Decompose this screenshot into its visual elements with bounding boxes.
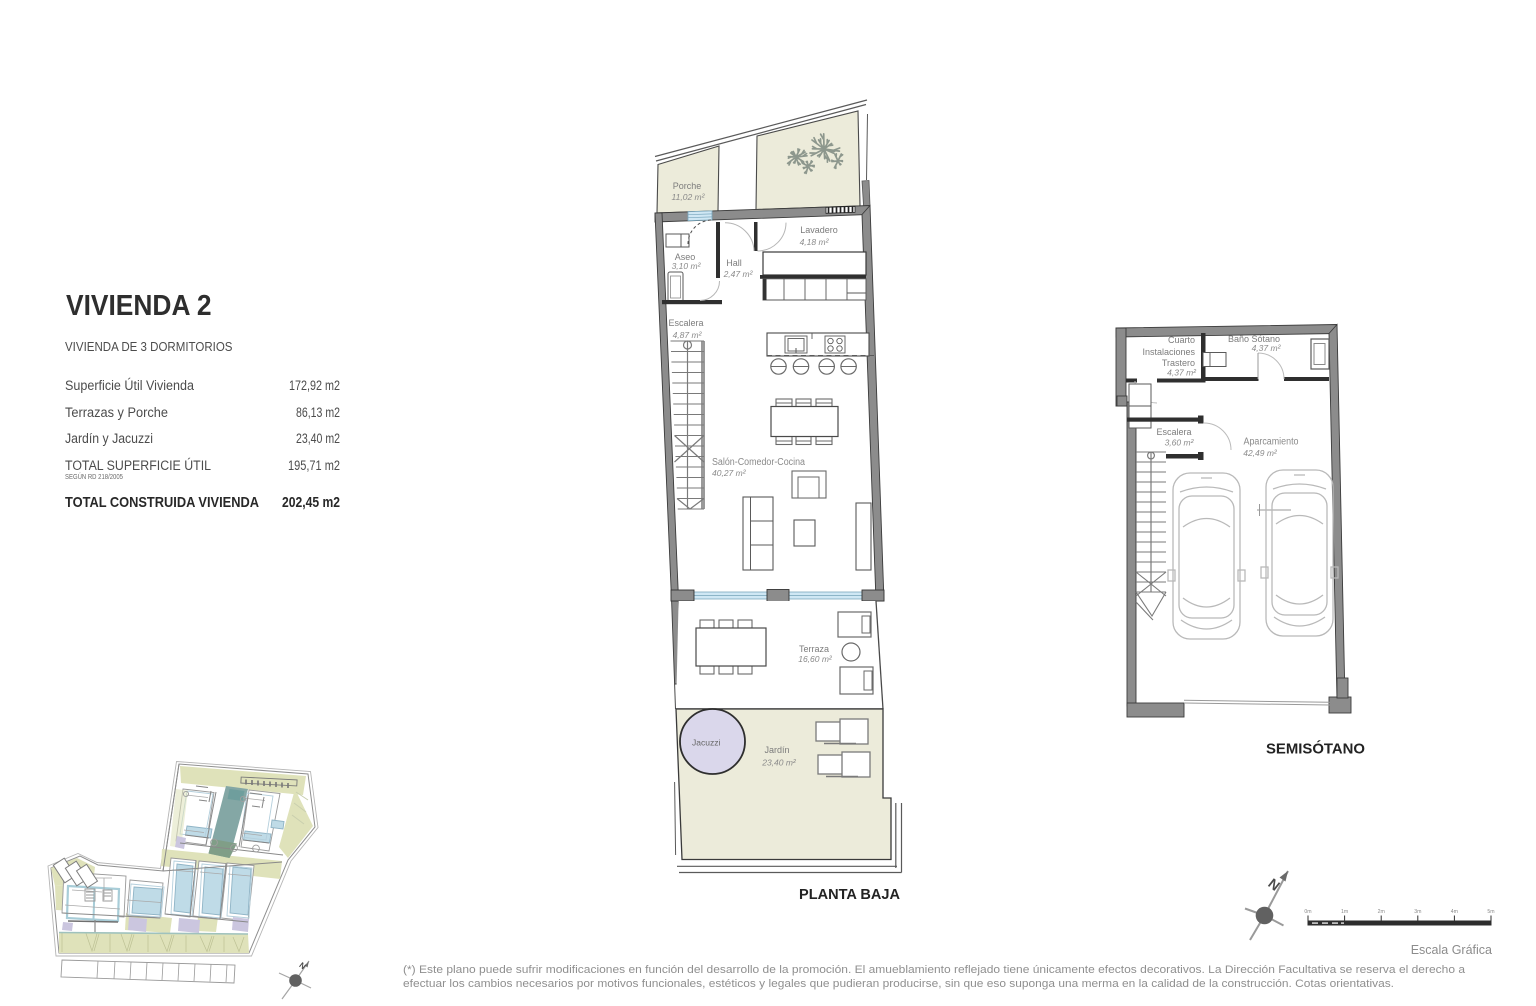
svg-text:2,47 m²: 2,47 m² — [723, 269, 754, 279]
svg-text:TOTAL SUPERFICIE ÚTIL: TOTAL SUPERFICIE ÚTIL — [65, 458, 211, 473]
svg-text:Superficie Útil Vivienda: Superficie Útil Vivienda — [65, 378, 194, 393]
svg-text:Escalera: Escalera — [1156, 427, 1191, 437]
svg-text:Aparcamiento: Aparcamiento — [1244, 437, 1299, 448]
svg-text:16,60 m²: 16,60 m² — [798, 654, 833, 664]
svg-text:Jacuzzi: Jacuzzi — [692, 738, 720, 748]
svg-text:4,37 m²: 4,37 m² — [1167, 368, 1197, 378]
svg-text:PLANTA BAJA: PLANTA BAJA — [799, 887, 901, 903]
svg-text:3,60 m²: 3,60 m² — [1165, 438, 1195, 448]
svg-text:4,18 m²: 4,18 m² — [800, 237, 830, 247]
svg-text:172,92 m2: 172,92 m2 — [289, 378, 340, 393]
svg-text:1m: 1m — [1341, 909, 1348, 915]
svg-text:86,13 m2: 86,13 m2 — [296, 405, 340, 420]
svg-text:4,87 m²: 4,87 m² — [673, 330, 703, 340]
svg-text:23,40 m2: 23,40 m2 — [296, 431, 340, 446]
svg-text:4m: 4m — [1451, 909, 1458, 915]
svg-text:SEGÚN RD 218/2005: SEGÚN RD 218/2005 — [65, 472, 123, 481]
svg-text:Escalera: Escalera — [668, 318, 703, 328]
svg-text:Hall: Hall — [726, 258, 742, 268]
svg-text:3,10 m²: 3,10 m² — [672, 261, 702, 271]
svg-text:40,27 m²: 40,27 m² — [712, 468, 747, 478]
svg-text:42,49 m²: 42,49 m² — [1243, 448, 1278, 458]
svg-text:SEMISÓTANO: SEMISÓTANO — [1266, 740, 1365, 758]
svg-text:efectuar los cambios necesario: efectuar los cambios necesarios por moti… — [403, 978, 1394, 990]
svg-text:Trastero: Trastero — [1162, 358, 1195, 368]
svg-text:Instalaciones: Instalaciones — [1142, 347, 1195, 357]
svg-text:2m: 2m — [1378, 909, 1385, 915]
svg-text:11,02 m²: 11,02 m² — [672, 192, 706, 202]
svg-text:Jardín: Jardín — [764, 745, 789, 755]
svg-text:Cuarto: Cuarto — [1168, 335, 1195, 345]
svg-text:3m: 3m — [1414, 909, 1421, 915]
svg-text:Porche: Porche — [673, 181, 702, 191]
svg-text:Lavadero: Lavadero — [800, 225, 838, 235]
svg-text:Terrazas y Porche: Terrazas y Porche — [65, 405, 168, 420]
svg-text:(*) Este plano puede sufrir mo: (*) Este plano puede sufrir modificacion… — [403, 964, 1466, 976]
svg-text:5m: 5m — [1487, 909, 1494, 915]
svg-text:TOTAL CONSTRUIDA VIVIENDA: TOTAL CONSTRUIDA VIVIENDA — [65, 494, 259, 511]
svg-text:Jardín y Jacuzzi: Jardín y Jacuzzi — [65, 431, 153, 446]
svg-text:202,45 m2: 202,45 m2 — [282, 494, 340, 511]
svg-text:23,40 m²: 23,40 m² — [761, 758, 797, 768]
svg-text:195,71 m2: 195,71 m2 — [288, 458, 340, 473]
svg-text:4,37 m²: 4,37 m² — [1252, 343, 1282, 353]
svg-text:Escala Gráfica: Escala Gráfica — [1411, 943, 1492, 957]
svg-text:0m: 0m — [1304, 909, 1311, 915]
svg-text:VIVIENDA DE 3 DORMITORIOS: VIVIENDA DE 3 DORMITORIOS — [65, 339, 233, 354]
svg-text:Salón-Comedor-Cocina: Salón-Comedor-Cocina — [712, 457, 805, 468]
svg-text:Terraza: Terraza — [799, 644, 829, 654]
svg-text:VIVIENDA 2: VIVIENDA 2 — [66, 290, 212, 322]
